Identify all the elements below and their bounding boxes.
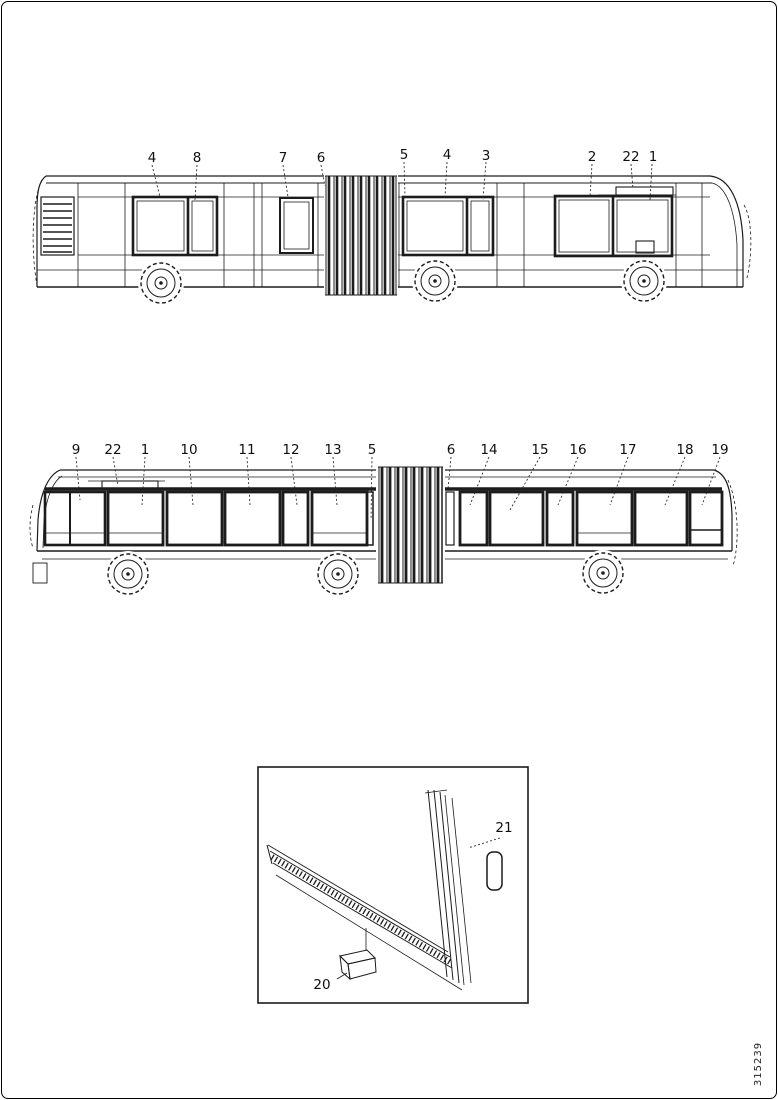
callout-11: 11 [238,442,255,458]
part-20-block [340,950,376,979]
window-11 [225,492,280,545]
callout-19: 19 [711,442,728,458]
inset-callouts: 20 21 [313,820,512,993]
callout-1a: 1 [649,149,658,165]
wheel [412,258,458,304]
callout-22b: 22 [104,442,121,458]
callout-16: 16 [569,442,586,458]
part-21-cap [487,852,502,890]
window-12 [283,492,308,545]
callout-15: 15 [531,442,548,458]
window-rear-group [133,197,217,255]
callout-13: 13 [324,442,341,458]
wheel [138,260,184,306]
window-15 [490,492,543,545]
middle-view-bus: 9 22 1 10 11 12 13 5 6 14 15 16 17 18 19 [30,442,737,597]
articulation-bellows-left [376,466,445,584]
roof-sign-top-view [616,187,673,195]
vent-flap [636,241,654,253]
top-view-leaders [152,162,652,200]
detail-inset: 20 21 [258,767,528,1003]
callout-6a: 6 [317,150,326,166]
window-14 [460,492,487,545]
callout-20: 20 [313,977,330,993]
window-13 [312,492,367,545]
wheel [621,258,667,304]
edge-pane-6 [446,492,454,545]
window-front-group [555,187,676,256]
window-18 [635,492,687,545]
wheel [580,550,626,596]
callout-4a: 4 [148,150,157,166]
rear-section-windows [446,492,722,545]
articulation-bellows [324,175,398,296]
front-section-windows [108,492,373,545]
top-view-bus: 4 8 7 6 5 4 3 2 22 1 [33,147,751,306]
callout-6b: 6 [447,442,456,458]
callout-7: 7 [279,150,288,166]
drawing-number: 315239 [753,1042,764,1086]
callout-1b: 1 [141,442,150,458]
window-1 [108,492,163,545]
front-apron [33,563,47,583]
callout-14: 14 [480,442,497,458]
wheel [105,551,151,597]
callout-10: 10 [180,442,197,458]
wheel [315,551,361,597]
parts-diagram-page: 4 8 7 6 5 4 3 2 22 1 [0,0,778,1100]
callout-17: 17 [619,442,636,458]
callout-4b: 4 [443,147,452,163]
engine-louver [41,197,74,255]
callout-5b: 5 [368,442,377,458]
frame-rail [267,845,462,990]
callout-8: 8 [193,150,202,166]
top-view-callouts: 4 8 7 6 5 4 3 2 22 1 [148,147,658,166]
callout-18: 18 [676,442,693,458]
callout-5a: 5 [400,147,409,163]
callout-12: 12 [282,442,299,458]
window-19 [690,492,722,545]
callout-2: 2 [588,149,597,165]
callout-3: 3 [482,148,491,164]
window-17 [577,492,632,545]
diagram-canvas: 4 8 7 6 5 4 3 2 22 1 [0,0,778,1100]
callout-9: 9 [72,442,81,458]
window-small-7 [280,198,313,253]
window-mid-group [403,197,493,255]
middle-view-callouts: 9 22 1 10 11 12 13 5 6 14 15 16 17 18 19 [72,442,729,458]
callout-22a: 22 [622,149,639,165]
window-10 [167,492,222,545]
callout-21: 21 [495,820,512,836]
front-door [45,492,105,545]
